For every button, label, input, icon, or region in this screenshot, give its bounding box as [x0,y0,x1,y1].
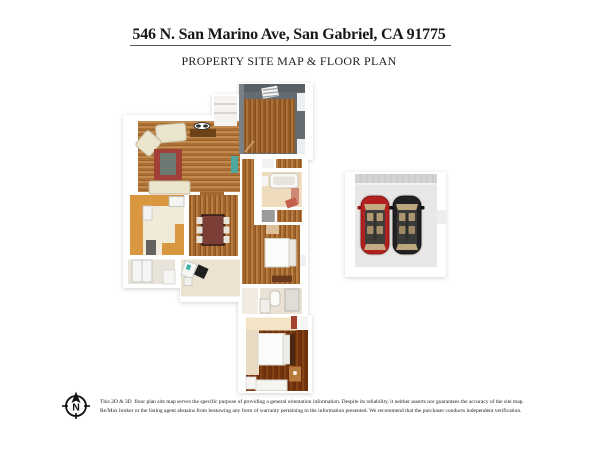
svg-text:N: N [72,402,80,414]
